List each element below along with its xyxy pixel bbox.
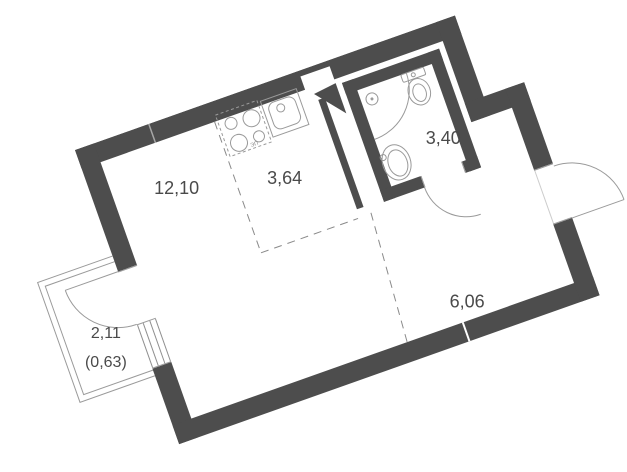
entrance-door-leaf (572, 200, 624, 218)
balcony-reduced-area-value: (0,63) (85, 348, 127, 377)
floor-plan: ЭП 12,10 3,64 3,40 6,06 (0, 0, 627, 472)
stove-burner (223, 116, 238, 131)
hallway-zone-divider (362, 213, 415, 342)
balcony-window (137, 318, 171, 368)
window-line (143, 323, 158, 365)
balcony-door-leaf (65, 272, 118, 291)
bathroom-door (425, 173, 481, 229)
room-label-living: 12,10 (154, 178, 199, 199)
window-cap-top (137, 318, 156, 325)
wall-right-above-entrance (505, 82, 553, 170)
entrance-door-arc (554, 148, 624, 218)
zone-dividers (215, 83, 416, 378)
room-label-kitchen: 3,64 (267, 168, 302, 189)
floor-plan-canvas: ЭП 12,10 3,64 3,40 6,06 (0, 0, 627, 472)
window-line (150, 321, 165, 363)
toilet-bowl-inner (410, 82, 428, 103)
room-label-hallway: 6,06 (450, 291, 485, 312)
window-line (138, 325, 153, 367)
room-label-bathroom: 3,40 (426, 128, 461, 149)
balcony-area-value: 2,11 (85, 319, 127, 348)
kitchen-sink-drain (276, 103, 286, 113)
wall-bottom (172, 276, 599, 444)
window-line (155, 319, 170, 361)
wall-left-upper (75, 143, 137, 271)
wall-top (75, 15, 462, 168)
bathroom-door-arc (425, 173, 481, 229)
room-label-balcony: 2,11 (0,63) (85, 319, 127, 377)
shower-head-dot (370, 97, 374, 101)
stove-type-label: ЭП (250, 141, 259, 149)
exterior-walls (75, 1, 600, 444)
floor-plan-drawing: ЭП (0, 0, 627, 472)
toilet-flush-button (411, 72, 416, 77)
entrance-threshold (535, 170, 554, 224)
stove-burner (228, 132, 250, 154)
kitchen-zone-divider-horizontal (261, 218, 358, 252)
